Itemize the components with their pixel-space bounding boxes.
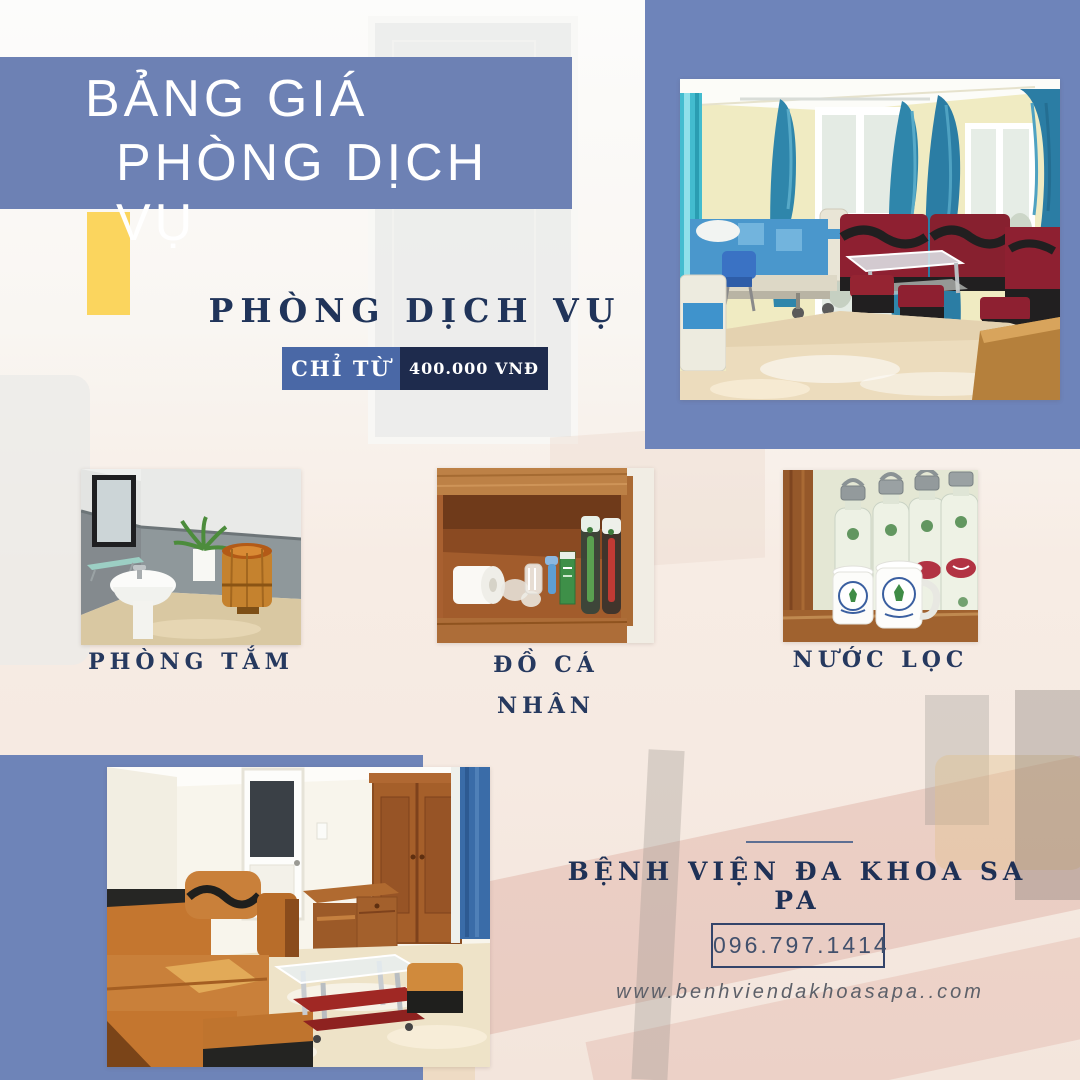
website-url: www.benhviendakhoasapa..com — [595, 981, 1005, 1004]
phone-box: 096.797.1414 — [711, 923, 885, 968]
price-badge: CHỈ TỪ 400.000 VNĐ — [282, 347, 548, 390]
bathroom-photo — [81, 469, 301, 645]
service-room-heading: PHÒNG DỊCH VỤ — [185, 291, 645, 330]
background-sofa-shape — [0, 375, 90, 665]
background-armrest-shape — [935, 755, 1080, 870]
drinking-water-photo — [783, 470, 978, 642]
living-room-photo — [107, 767, 490, 1067]
price-badge-label: CHỈ TỪ — [282, 347, 400, 390]
poster-title-line2: PHÒNG DỊCH VỤ — [116, 133, 572, 253]
caption-drinking-water: NƯỚC LỌC — [768, 647, 993, 673]
price-badge-value: 400.000 VNĐ — [400, 347, 548, 390]
caption-personal-items: ĐỒ CÁ NHÂN — [460, 645, 632, 727]
phone-number: 096.797.1414 — [713, 932, 890, 958]
poster-title-line1: BẢNG GIÁ — [85, 69, 368, 129]
poster-canvas: BẢNG GIÁ PHÒNG DỊCH VỤ PHÒNG DỊCH VỤ CHỈ… — [0, 0, 1080, 1080]
personal-items-photo — [437, 468, 654, 643]
hospital-name: BỆNH VIỆN ĐA KHOA SA PA — [545, 857, 1050, 915]
background-table-leg-shape-2 — [925, 695, 989, 825]
title-banner: BẢNG GIÁ PHÒNG DỊCH VỤ — [0, 57, 572, 209]
footer-divider-line — [746, 841, 853, 843]
caption-bathroom: PHÒNG TẮM — [71, 649, 311, 675]
service-room-photo — [680, 79, 1060, 400]
